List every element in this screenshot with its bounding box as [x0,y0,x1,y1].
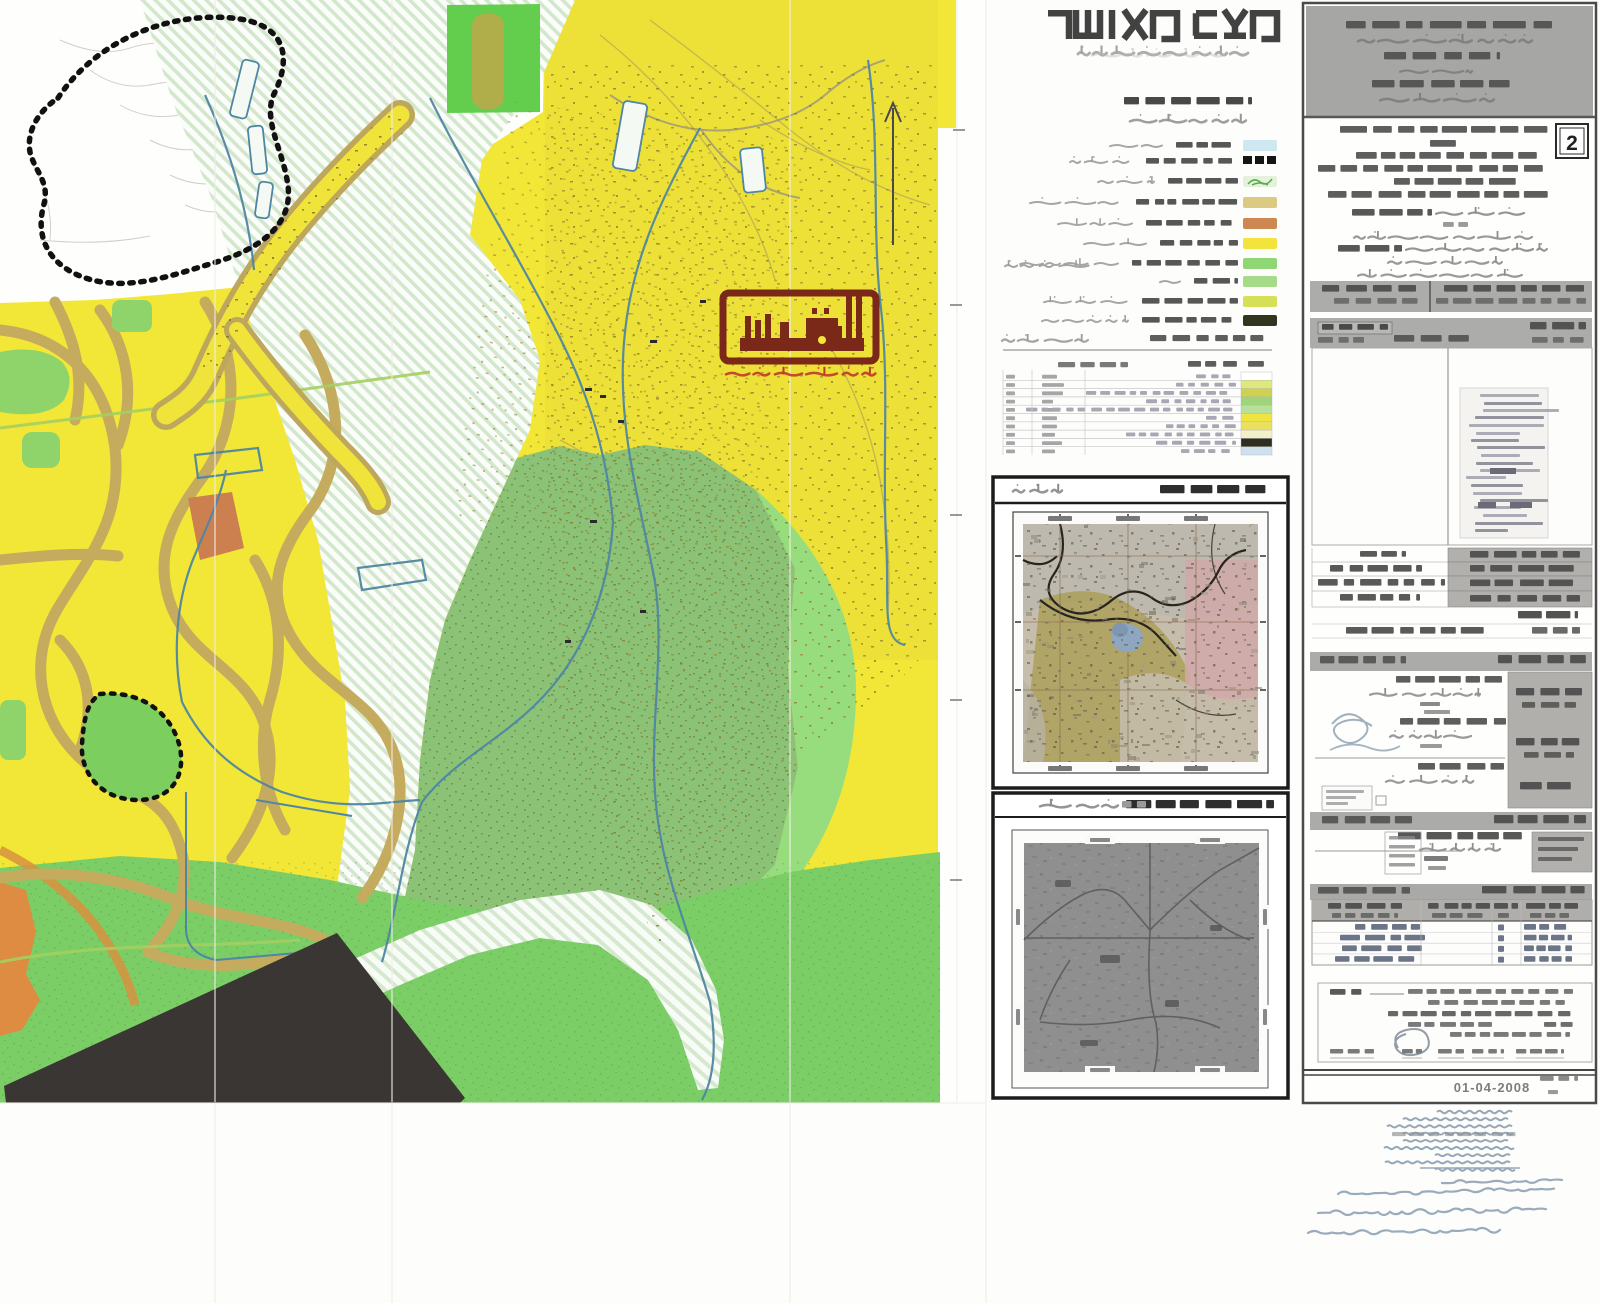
svg-text:2: 2 [1566,132,1578,155]
svg-text:01-04-2008: 01-04-2008 [1454,1080,1531,1095]
